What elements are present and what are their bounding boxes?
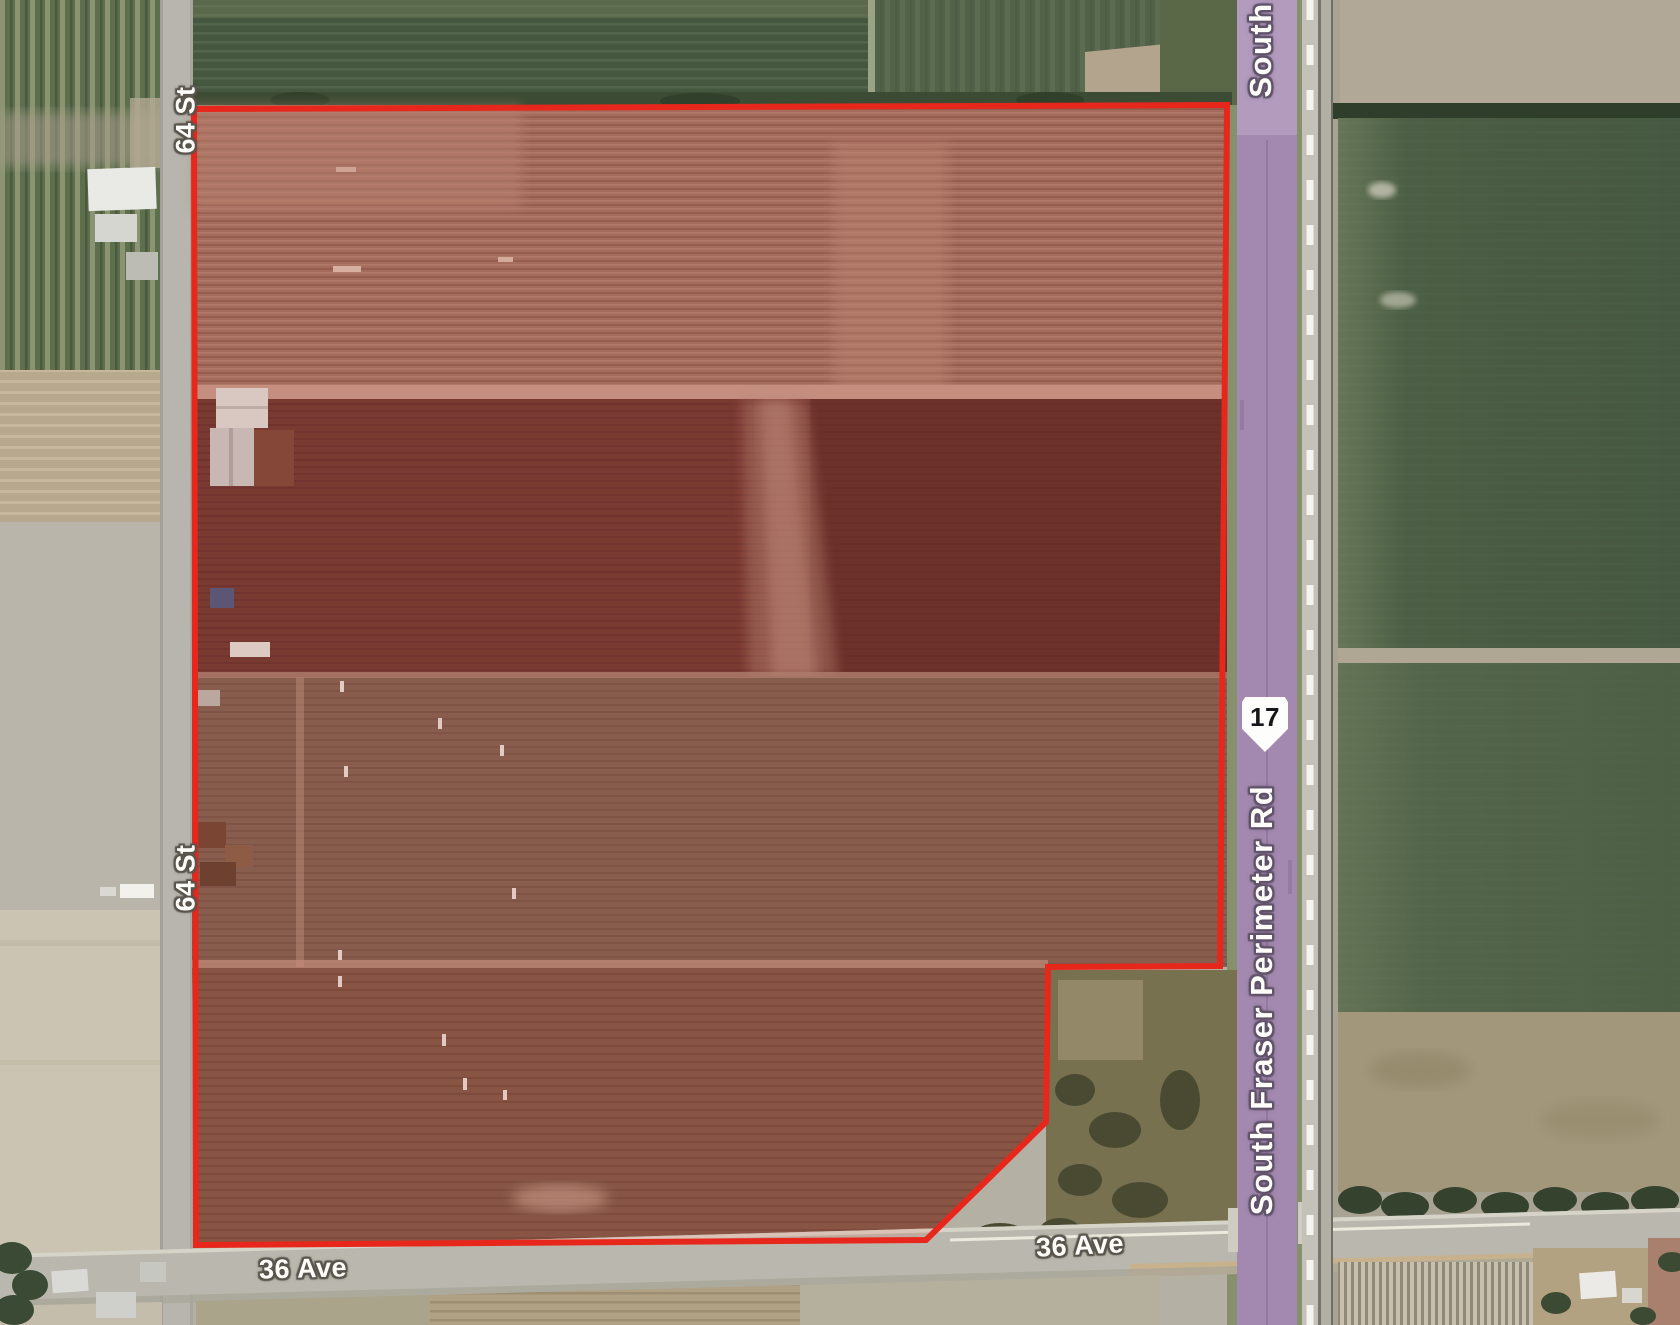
- map-viewport[interactable]: 64 St 64 St 36 Ave 36 Ave South Fraser P…: [0, 0, 1680, 1325]
- fields-east: [1295, 0, 1680, 1325]
- road-64-st: [160, 0, 193, 1325]
- railway: [1302, 0, 1333, 1325]
- road-label-south-fraser-perimeter-rd: South Fraser Perimeter Rd: [1244, 785, 1280, 1215]
- road-label-south-fragment: South: [1243, 2, 1279, 97]
- road-label-64-st-mid: 64 St: [171, 844, 202, 911]
- satellite-map-canvas: [0, 0, 1680, 1325]
- road-label-36-ave-west: 36 Ave: [259, 1252, 348, 1285]
- fields-north: [193, 0, 1237, 112]
- road-label-36-ave-east: 36 Ave: [1035, 1228, 1125, 1264]
- fields-west: [0, 0, 162, 1258]
- road-label-64-st-top: 64 St: [171, 86, 202, 153]
